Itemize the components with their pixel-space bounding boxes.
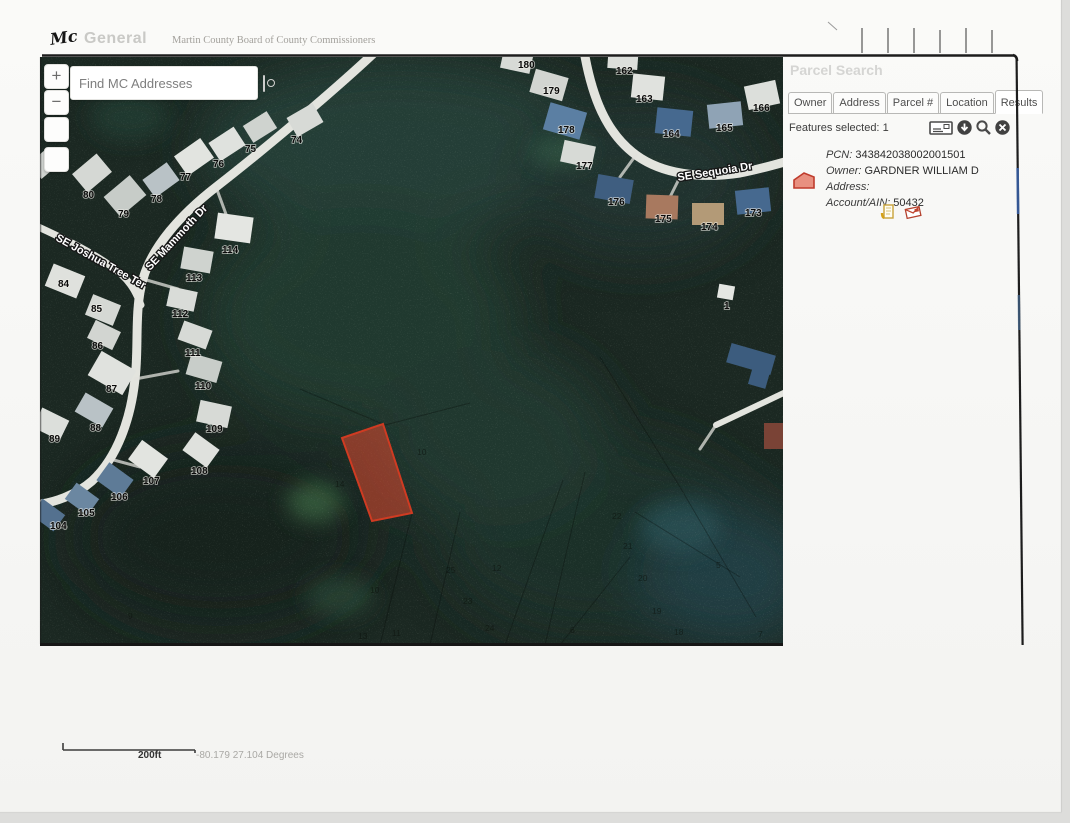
tab-owner[interactable]: Owner bbox=[788, 92, 832, 113]
scanned-page: Mc General Martin County Board of County… bbox=[0, 0, 1062, 813]
mc-logo: Mc bbox=[49, 26, 79, 49]
parcel-search-panel: Parcel Search OwnerAddressParcel #Locati… bbox=[784, 57, 1016, 632]
house-number: 163 bbox=[636, 94, 653, 105]
mail-label-icon[interactable] bbox=[904, 203, 923, 221]
parcel-number: 7 bbox=[758, 629, 763, 639]
house-number: 89 bbox=[49, 434, 61, 445]
house-number: 108 bbox=[191, 466, 208, 477]
parcel-number: 9 bbox=[128, 611, 133, 621]
clear-results-icon[interactable] bbox=[994, 119, 1011, 136]
aerial-map[interactable]: 14102221201918232425651011131279 7475767… bbox=[40, 57, 783, 645]
parcel-number: 25 bbox=[446, 565, 456, 575]
house-number: 106 bbox=[111, 492, 128, 503]
house-number: 166 bbox=[753, 103, 770, 114]
house-number: 74 bbox=[291, 135, 303, 146]
house-number: 78 bbox=[151, 194, 163, 205]
panel-title: Parcel Search bbox=[790, 62, 883, 78]
parcel-number: 21 bbox=[623, 541, 633, 551]
parcel-number: 22 bbox=[612, 511, 622, 521]
map-canvas: 14102221201918232425651011131279 7475767… bbox=[40, 57, 783, 645]
result-address: Address bbox=[826, 181, 979, 193]
house-number: 80 bbox=[83, 190, 95, 201]
house-number: 114 bbox=[222, 245, 239, 256]
tab-results[interactable]: Results bbox=[995, 90, 1044, 114]
search-input[interactable] bbox=[71, 76, 263, 91]
house-number: 86 bbox=[92, 341, 104, 352]
house-number: 111 bbox=[185, 348, 201, 359]
parcel-number: 23 bbox=[463, 596, 473, 606]
house-number: 162 bbox=[616, 66, 633, 77]
forest-speckle bbox=[40, 57, 783, 645]
result-owner: OwnerGARDNER WILLIAM D bbox=[826, 165, 979, 177]
address-search-box[interactable] bbox=[70, 66, 258, 100]
house-number: 112 bbox=[172, 309, 189, 320]
org-title: Martin County Board of County Commission… bbox=[172, 35, 375, 46]
parcel-number: 5 bbox=[716, 560, 721, 570]
house-number: 165 bbox=[716, 123, 733, 134]
parcel-number: 18 bbox=[674, 627, 684, 637]
house-number: 180 bbox=[518, 60, 535, 71]
house-number: 107 bbox=[143, 476, 160, 487]
parcel-number: 10 bbox=[417, 447, 427, 457]
parcel-tabs: OwnerAddressParcel #LocationResults bbox=[788, 90, 1012, 114]
tab-parcel-[interactable]: Parcel # bbox=[887, 92, 939, 113]
house-number: 164 bbox=[663, 129, 680, 140]
house-number: 87 bbox=[106, 384, 118, 395]
parcel-number: 19 bbox=[652, 606, 662, 616]
parcel-number: 24 bbox=[485, 623, 495, 633]
parcel-number: 14 bbox=[335, 479, 345, 489]
house-number: 110 bbox=[195, 381, 212, 392]
house-number: 85 bbox=[91, 304, 103, 315]
house-number: 175 bbox=[655, 214, 672, 225]
house-number: 88 bbox=[90, 423, 102, 434]
zoom-to-results-icon[interactable] bbox=[975, 119, 992, 136]
house-number: 79 bbox=[118, 209, 130, 220]
parcel-number: 10 bbox=[370, 585, 380, 595]
parcel-number: 13 bbox=[358, 631, 368, 641]
scale-label: 200ft bbox=[138, 750, 161, 761]
parcel-number: 20 bbox=[638, 573, 648, 583]
house-number: 104 bbox=[50, 521, 67, 532]
property-card-icon[interactable] bbox=[880, 203, 897, 221]
map-tool-button-1[interactable] bbox=[44, 117, 69, 142]
house-number: 177 bbox=[576, 161, 593, 172]
app-title: General bbox=[84, 30, 147, 48]
features-selected-text: Features selected: 1 bbox=[789, 122, 929, 134]
search-icon[interactable] bbox=[263, 75, 265, 92]
house-number: 77 bbox=[180, 172, 192, 183]
result-pcn: PCN343842038002001501 bbox=[826, 149, 979, 161]
parcel-swatch-icon bbox=[792, 171, 816, 191]
house-number: 173 bbox=[745, 208, 762, 219]
download-results-icon[interactable] bbox=[956, 119, 973, 136]
house-number: 179 bbox=[543, 86, 560, 97]
scale-bar bbox=[62, 741, 202, 755]
parcel-number: 12 bbox=[492, 563, 502, 573]
zoom-out-button[interactable]: − bbox=[44, 90, 69, 115]
house-number: 178 bbox=[558, 125, 575, 136]
house-number: 176 bbox=[608, 197, 625, 208]
tab-location[interactable]: Location bbox=[940, 92, 994, 113]
house-number: 84 bbox=[58, 279, 70, 290]
house-number: 75 bbox=[245, 144, 257, 155]
zoom-in-button[interactable]: + bbox=[44, 64, 69, 89]
house-number: 109 bbox=[206, 424, 223, 435]
parcel-number: 6 bbox=[570, 625, 575, 635]
parcel-number: 11 bbox=[392, 628, 401, 638]
house-number: 113 bbox=[186, 273, 203, 284]
house-number: 105 bbox=[78, 508, 95, 519]
coordinates-readout: -80.179 27.104 Degrees bbox=[196, 750, 304, 761]
mailer-icon[interactable] bbox=[929, 120, 954, 136]
house-number: 76 bbox=[213, 159, 225, 170]
house-number: 1 bbox=[724, 301, 730, 312]
map-tool-button-2[interactable] bbox=[44, 147, 69, 172]
tab-address[interactable]: Address bbox=[833, 92, 885, 113]
house-number: 174 bbox=[701, 222, 718, 233]
